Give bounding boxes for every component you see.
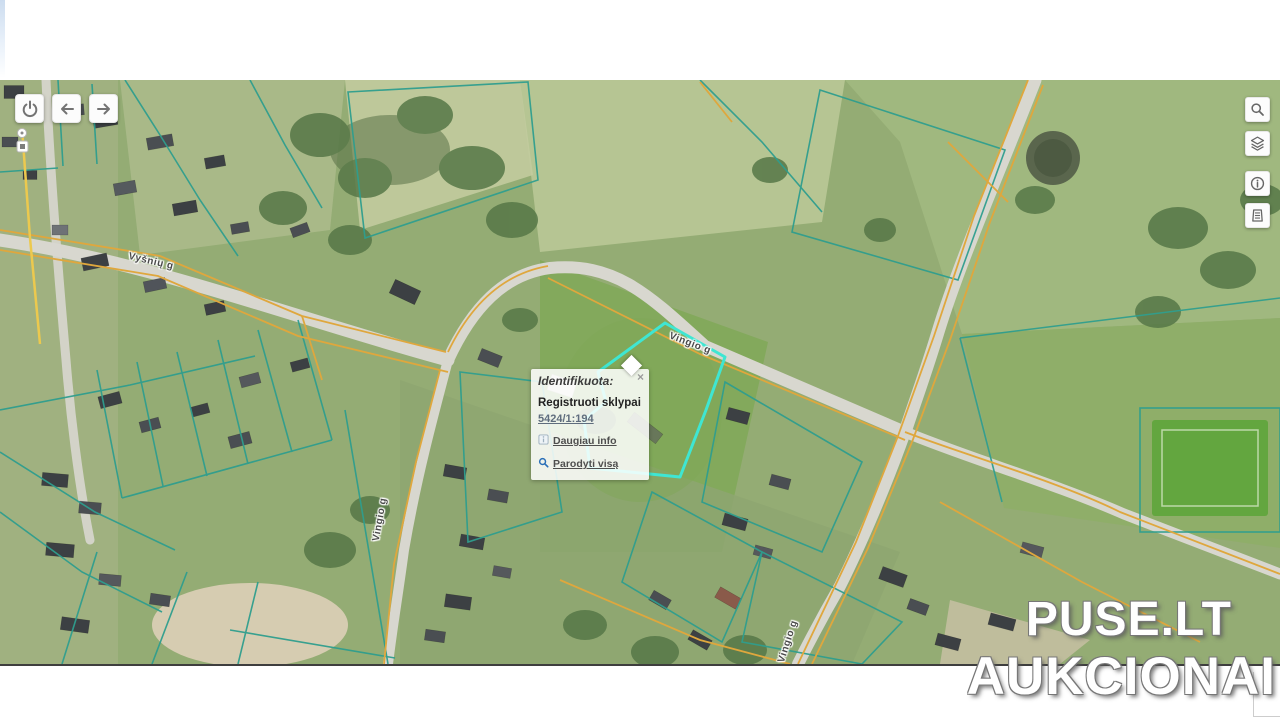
more-info-link[interactable]: Daugiau info	[553, 435, 617, 447]
bottom-right-panel-edge	[1253, 672, 1280, 717]
info-icon	[1249, 175, 1266, 192]
forward-button[interactable]	[89, 94, 118, 123]
arrow-left-icon	[57, 99, 77, 119]
more-info-icon	[538, 432, 549, 450]
show-all-link[interactable]: Parodyti visą	[553, 458, 618, 470]
layers-button[interactable]	[1245, 131, 1270, 156]
back-button[interactable]	[52, 94, 81, 123]
search-icon	[1249, 101, 1266, 118]
info-button[interactable]	[1245, 171, 1270, 196]
arrow-right-icon	[94, 99, 114, 119]
map-viewport: Vyšnių g Vingio g Vingio g Vingio g	[0, 80, 1280, 666]
search-button[interactable]	[1245, 97, 1270, 122]
legend-button[interactable]	[1245, 203, 1270, 228]
power-icon	[20, 99, 40, 119]
zoom-to-icon	[538, 455, 549, 473]
identify-popup: Identifikuota: × Registruoti sklypai 542…	[531, 369, 649, 480]
top-bar-edge-tint	[0, 0, 5, 78]
app-window: Vyšnių g Vingio g Vingio g Vingio g	[0, 0, 1280, 720]
close-icon[interactable]: ×	[637, 371, 644, 383]
document-list-icon	[1249, 207, 1266, 224]
layers-icon	[1249, 135, 1266, 152]
popup-title: Identifikuota:	[538, 374, 642, 388]
popup-result-layer: Registruoti sklypai	[538, 397, 642, 409]
parcel-code-link[interactable]: 5424/1:194	[538, 413, 594, 425]
top-bar	[0, 0, 1280, 80]
power-button[interactable]	[15, 94, 44, 123]
